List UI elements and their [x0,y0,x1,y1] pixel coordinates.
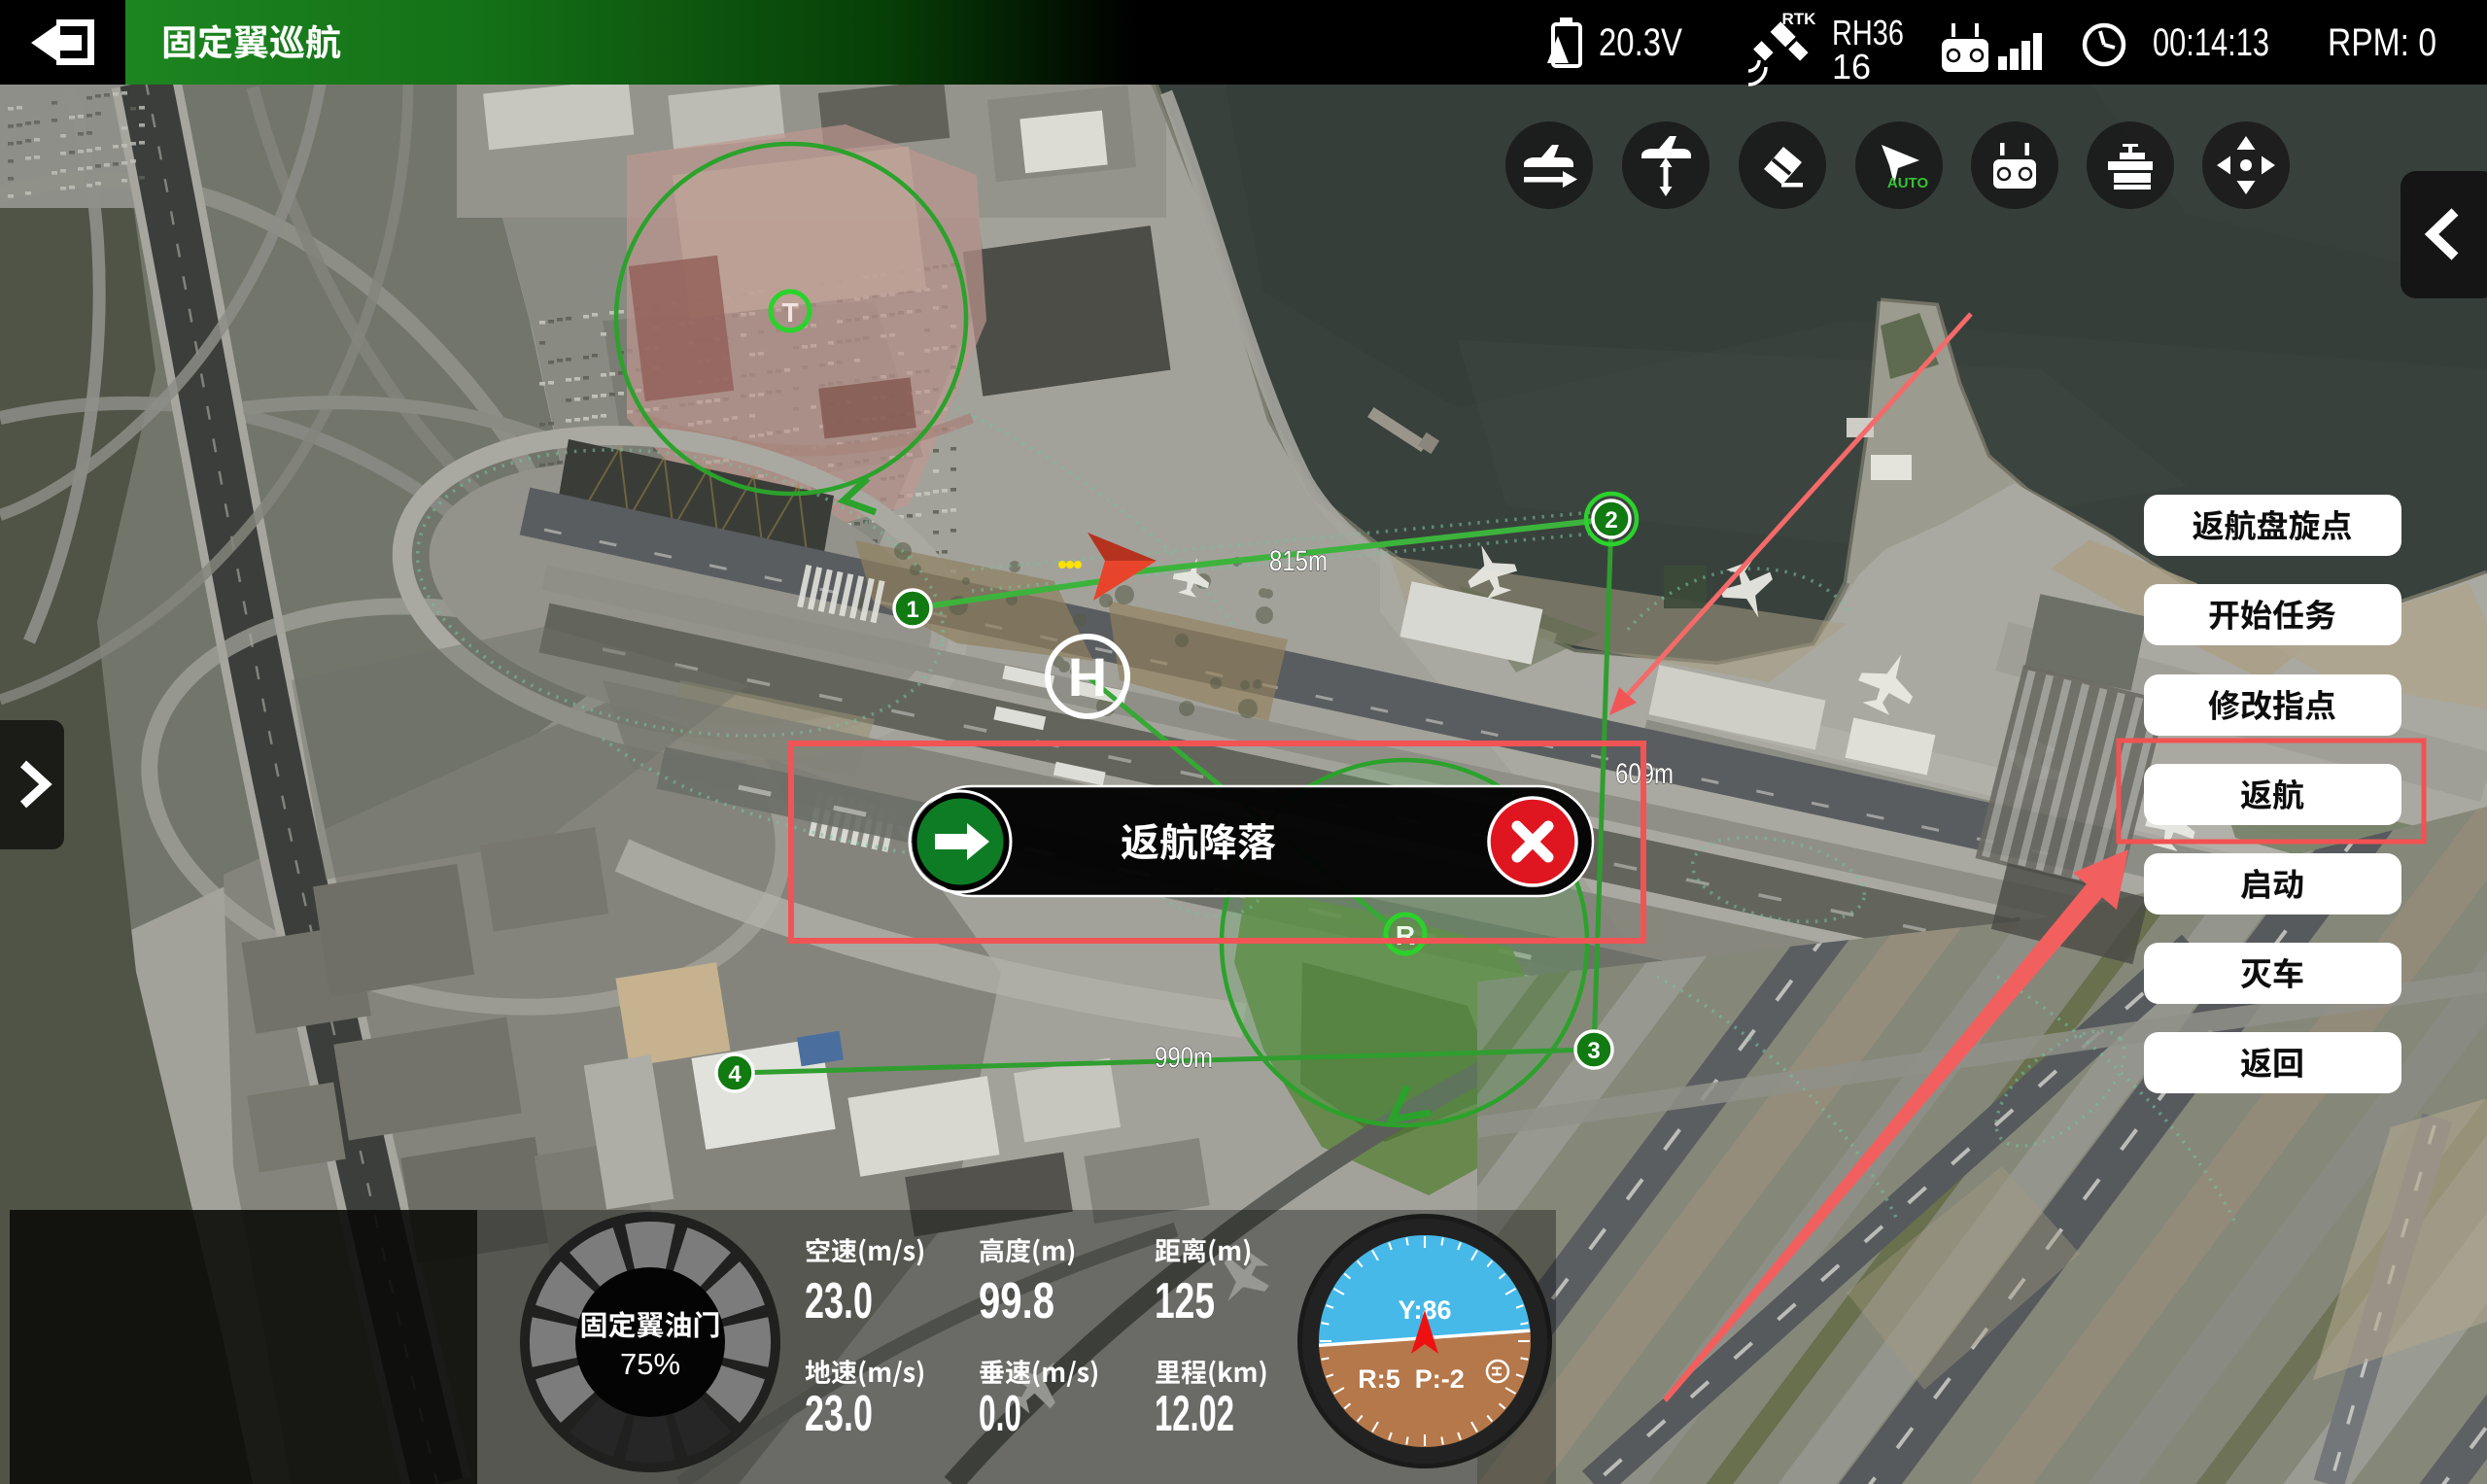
svg-text:125: 125 [1155,1273,1215,1329]
svg-text:20.3V: 20.3V [1599,21,1682,64]
svg-text:T: T [781,297,798,328]
svg-text:R: R [1396,920,1415,950]
svg-text:0.0: 0.0 [979,1386,1021,1442]
svg-text:75%: 75% [620,1347,680,1381]
svg-text:99.8: 99.8 [979,1273,1054,1329]
svg-text:RTK: RTK [1782,10,1817,28]
svg-text:H: H [1488,1366,1504,1377]
svg-text:3: 3 [1587,1038,1600,1064]
svg-text:990m: 990m [1155,1042,1213,1074]
svg-text:2: 2 [1605,507,1617,534]
svg-text:4: 4 [728,1061,742,1087]
svg-text:R:5 P:-2: R:5 P:-2 [1358,1364,1465,1394]
svg-text:1: 1 [906,597,918,623]
svg-text:RPM: 0: RPM: 0 [2328,21,2436,64]
svg-text:H: H [1068,646,1107,707]
svg-text:815m: 815m [1269,545,1328,577]
svg-text:23.0: 23.0 [805,1273,873,1329]
svg-text:AUTO: AUTO [1887,175,1929,191]
svg-text:23.0: 23.0 [805,1386,873,1442]
svg-text:00:14:13: 00:14:13 [2153,21,2269,64]
svg-text:16: 16 [1832,47,1871,86]
svg-text:12.02: 12.02 [1155,1386,1234,1442]
